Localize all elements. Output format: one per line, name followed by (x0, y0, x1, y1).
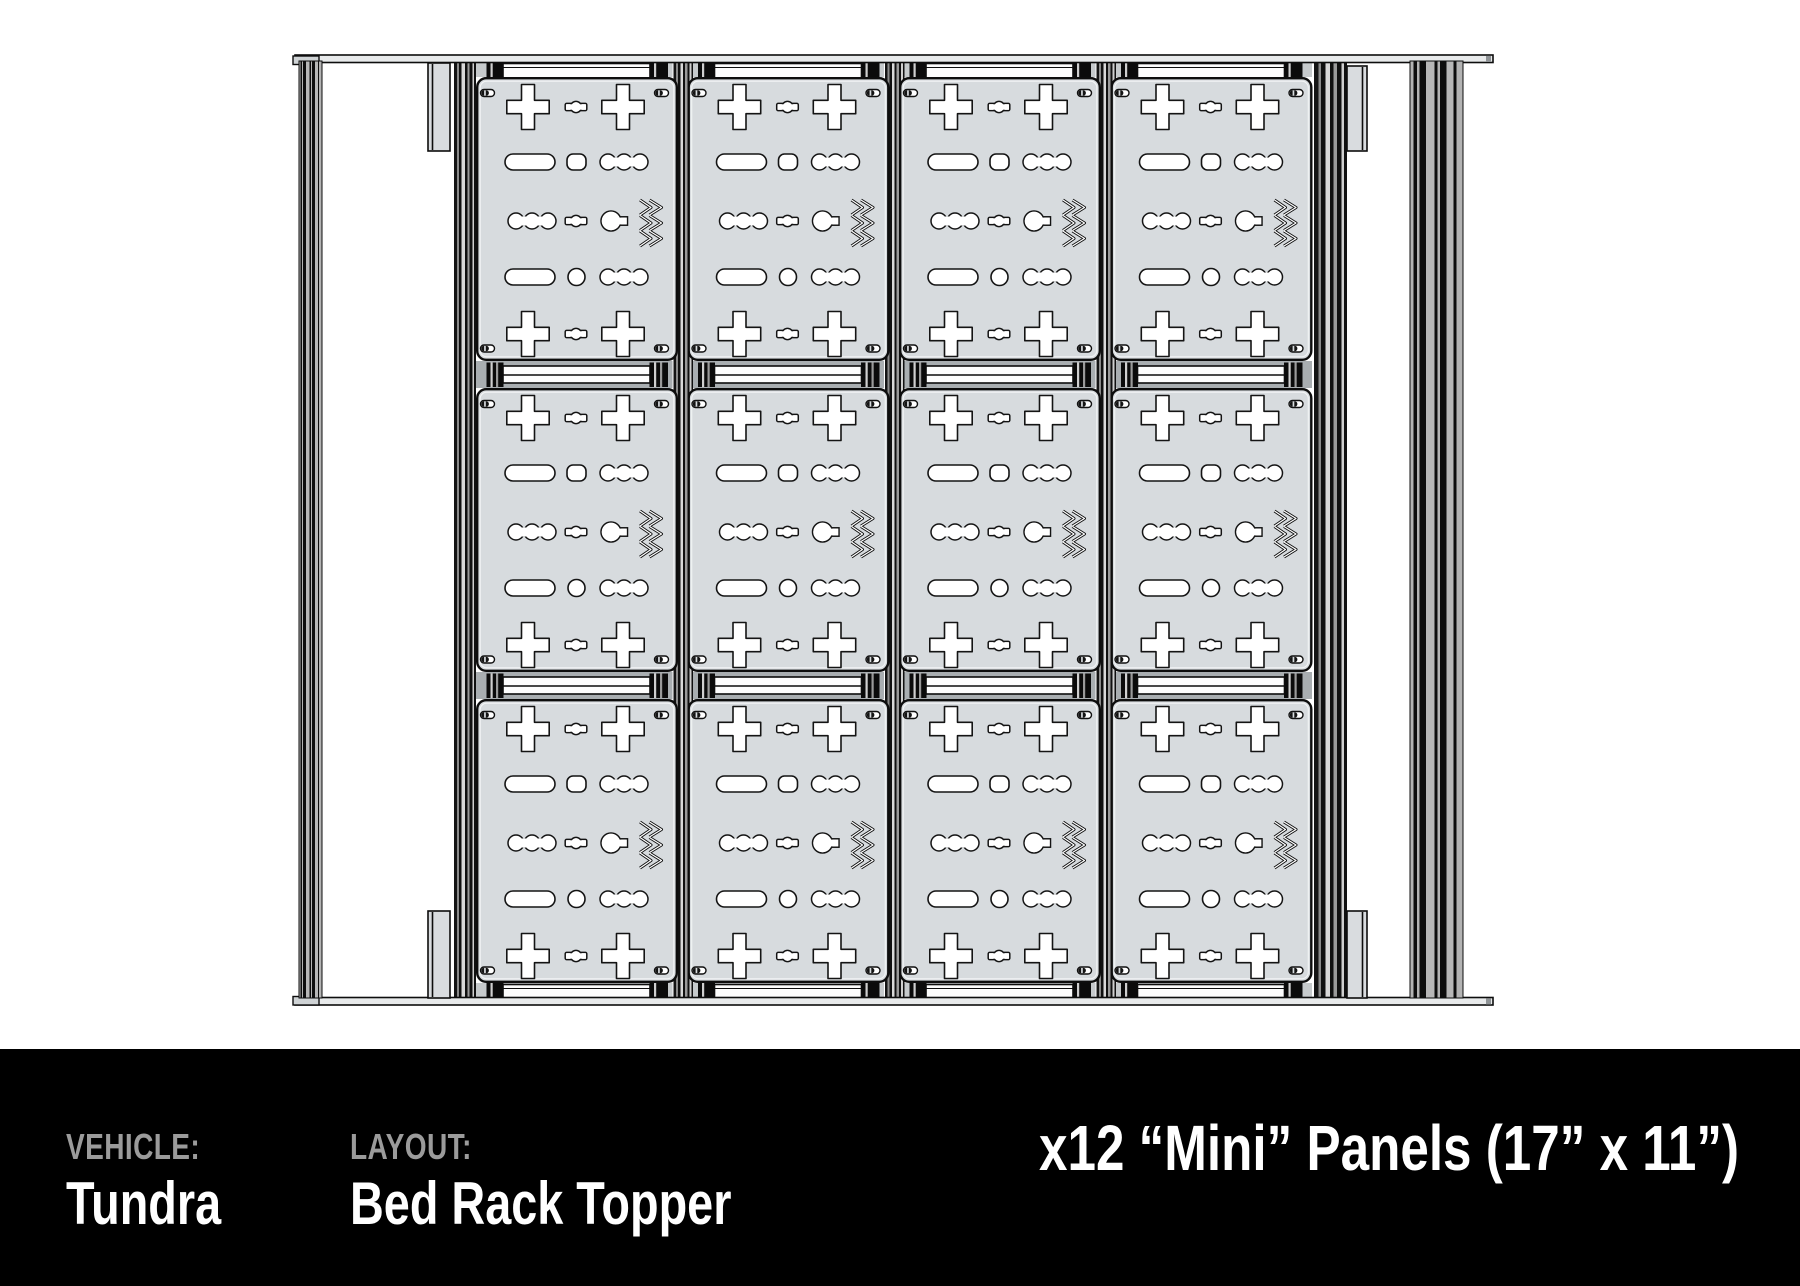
mini-panel-r1c4 (1112, 78, 1312, 360)
footer-bar: VEHICLE: Tundra LAYOUT: Bed Rack Topper … (0, 1049, 1800, 1286)
outer-rail-right (1410, 61, 1463, 998)
inner-rail-right (1312, 60, 1347, 999)
inner-rail-left (453, 60, 476, 999)
front-bar (295, 55, 1493, 63)
mini-panel-r2c1 (477, 389, 677, 671)
layout-label: LAYOUT: (350, 1129, 472, 1165)
mini-panel-r2c2 (689, 389, 889, 671)
mini-panel-r1c2 (689, 78, 889, 360)
front-bar-tick (1486, 56, 1491, 62)
bracket-bottom-left (428, 911, 450, 998)
mini-panel-r1c3 (900, 78, 1100, 360)
rear-bar (295, 998, 1493, 1006)
vehicle-label: VEHICLE: (66, 1129, 200, 1165)
mini-panel-r2c4 (1112, 389, 1312, 671)
mini-panel-r3c3 (900, 700, 1100, 982)
bracket-top-right (1347, 66, 1367, 151)
mini-panel-r1c1 (477, 78, 677, 360)
mini-panel-r3c4 (1112, 700, 1312, 982)
page: VEHICLE: Tundra LAYOUT: Bed Rack Topper … (0, 0, 1800, 1286)
mini-panel-r3c2 (689, 700, 889, 982)
mini-panel-r3c1 (477, 700, 677, 982)
outer-rail-left (299, 61, 322, 998)
mini-panel-r2c3 (900, 389, 1100, 671)
rear-bar-tick (1486, 999, 1491, 1005)
bracket-top-left (428, 63, 450, 151)
vehicle-value: Tundra (66, 1174, 221, 1234)
panel-count-title: x12 “Mini” Panels (17” x 11”) (1039, 1116, 1739, 1180)
bracket-bottom-right (1347, 911, 1367, 998)
layout-value: Bed Rack Topper (350, 1174, 731, 1234)
bed-rack-diagram (0, 0, 1800, 1049)
